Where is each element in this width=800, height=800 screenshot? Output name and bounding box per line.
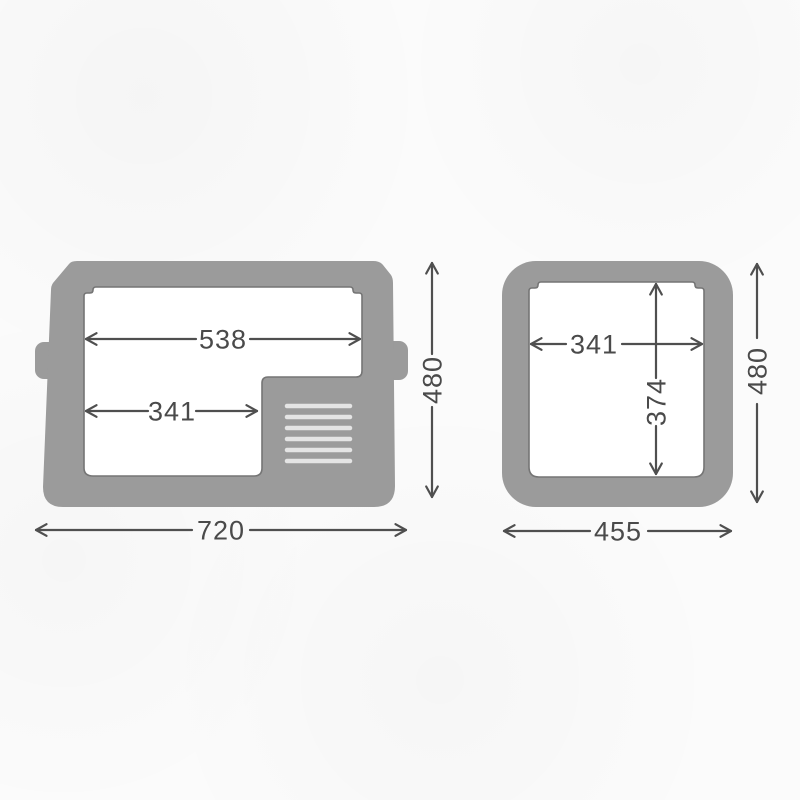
dim-front-overall-width-label: 455	[594, 516, 642, 546]
dim-side-height-label: 480	[417, 356, 447, 404]
diagram-canvas: 538 341 480 720 341 374 480 455	[0, 0, 800, 800]
dim-side-inner-lower-width-label: 341	[148, 396, 196, 426]
cooler-dimension-diagram: 538 341 480 720 341 374 480 455	[0, 0, 800, 800]
dim-front-inner-depth-label: 374	[641, 378, 671, 426]
front-view-cavity	[529, 282, 704, 477]
side-view	[35, 261, 408, 507]
dim-front-inner-width-label: 341	[570, 329, 618, 359]
front-view	[502, 261, 733, 507]
dim-side-overall-width-label: 720	[197, 515, 245, 545]
dim-front-height-label: 480	[742, 347, 772, 395]
dim-side-inner-top-width-label: 538	[199, 324, 247, 354]
